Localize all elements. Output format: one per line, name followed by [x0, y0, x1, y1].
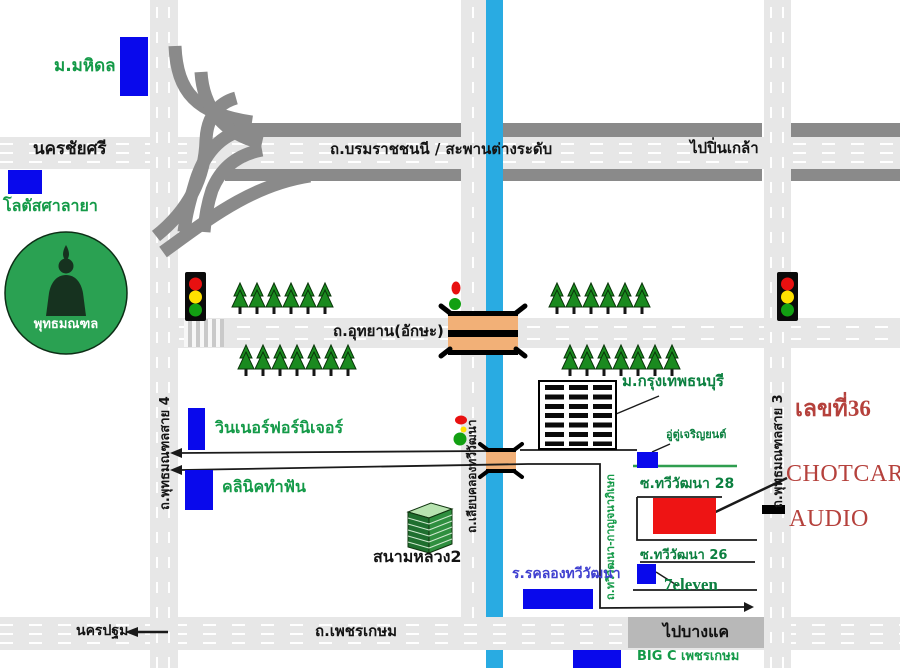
label-address-no: เลขที่36	[795, 396, 871, 422]
label-garage: อู่ตู่เจริญยนต์	[666, 429, 726, 442]
label-nakhon-pathom: นครปฐม	[76, 623, 128, 639]
label-winner-furniture: วินเนอร์ฟอร์นิเจอร์	[215, 419, 343, 437]
winner-furniture-building	[188, 408, 205, 450]
lotus-salaya-building	[8, 170, 42, 194]
khlong-school-building	[523, 589, 593, 609]
label-chotcar: CHOTCAR	[786, 461, 900, 489]
highway-median-bar	[225, 123, 461, 137]
label-phutthamonthon: พุทธมณฑล	[24, 318, 108, 333]
chotcar-audio-shop	[653, 498, 716, 534]
phutthamonthon-sai3-road	[764, 0, 791, 668]
label-khlong-school: ร.รคลองทวีวัฒนา	[512, 566, 621, 582]
label-lotus: โลตัสศาลายา	[3, 197, 98, 215]
label-audio: AUDIO	[789, 506, 869, 534]
sanam-luang2-building-icon	[408, 503, 452, 553]
bang-khae-sign: ไปบางแค	[628, 617, 764, 648]
vlabel-liab-khlong: ถ.เลียบคลองทวีวัฒนา	[463, 419, 482, 533]
label-soi26: ซ.ทวีวัฒนา 26	[640, 549, 727, 564]
phutthamonthon-park-icon	[5, 232, 127, 354]
label-bkk-thonburi-univ: ม.กรุงเทพธนบุรี	[622, 373, 724, 390]
label-phetkasem: ถ.เพชรเกษม	[315, 623, 397, 640]
seven-eleven-building	[637, 564, 656, 584]
label-soi28: ซ.ทวีวัฒนา 28	[640, 476, 734, 492]
highway-median-bar	[791, 169, 900, 181]
label-dental-clinic: คลินิคทำฟัน	[222, 478, 306, 496]
label-pin-klao: ไปปิ่นเกล้า	[690, 140, 759, 157]
label-uthayan: ถ.อุทยาน(อักษะ)	[333, 323, 444, 340]
mahidol-building	[120, 37, 148, 96]
hand-drawn-direction-map: นครชัยศรี ถ.บรมราชชนนี / สะพานต่างระดับ …	[0, 0, 900, 668]
traffic-light-icon	[185, 272, 206, 321]
label-mahidol: ม.มหิดล	[54, 57, 116, 77]
vlabel-sai4: ถ.พุทธมณฑลสาย 4	[154, 396, 175, 510]
buddha-statue-icon	[46, 245, 86, 316]
label-nakhon-chai-si: นครชัยศรี	[33, 140, 107, 160]
vlabel-sai3: ถ.พุทธมณฑลสาย 3	[767, 394, 788, 508]
big-c-building	[573, 650, 621, 668]
highway-median-bar	[225, 169, 461, 181]
phutthamonthon-sai4-road	[150, 0, 178, 668]
label-seven-eleven: 7eleven	[664, 575, 718, 595]
label-sanam-luang2: สนามหลวง2	[373, 548, 462, 566]
bkk-thonburi-university-building	[538, 380, 617, 450]
highway-median-bar	[503, 123, 762, 137]
dental-clinic-building	[185, 470, 213, 510]
label-highway: ถ.บรมราชชนนี / สะพานต่างระดับ	[330, 141, 552, 158]
highway-median-bar	[503, 169, 762, 181]
crosswalk	[184, 319, 224, 347]
highway-median-bar	[791, 123, 900, 137]
label-big-c: BIG C เพชรเกษม	[637, 650, 739, 665]
garage-building	[637, 452, 658, 468]
